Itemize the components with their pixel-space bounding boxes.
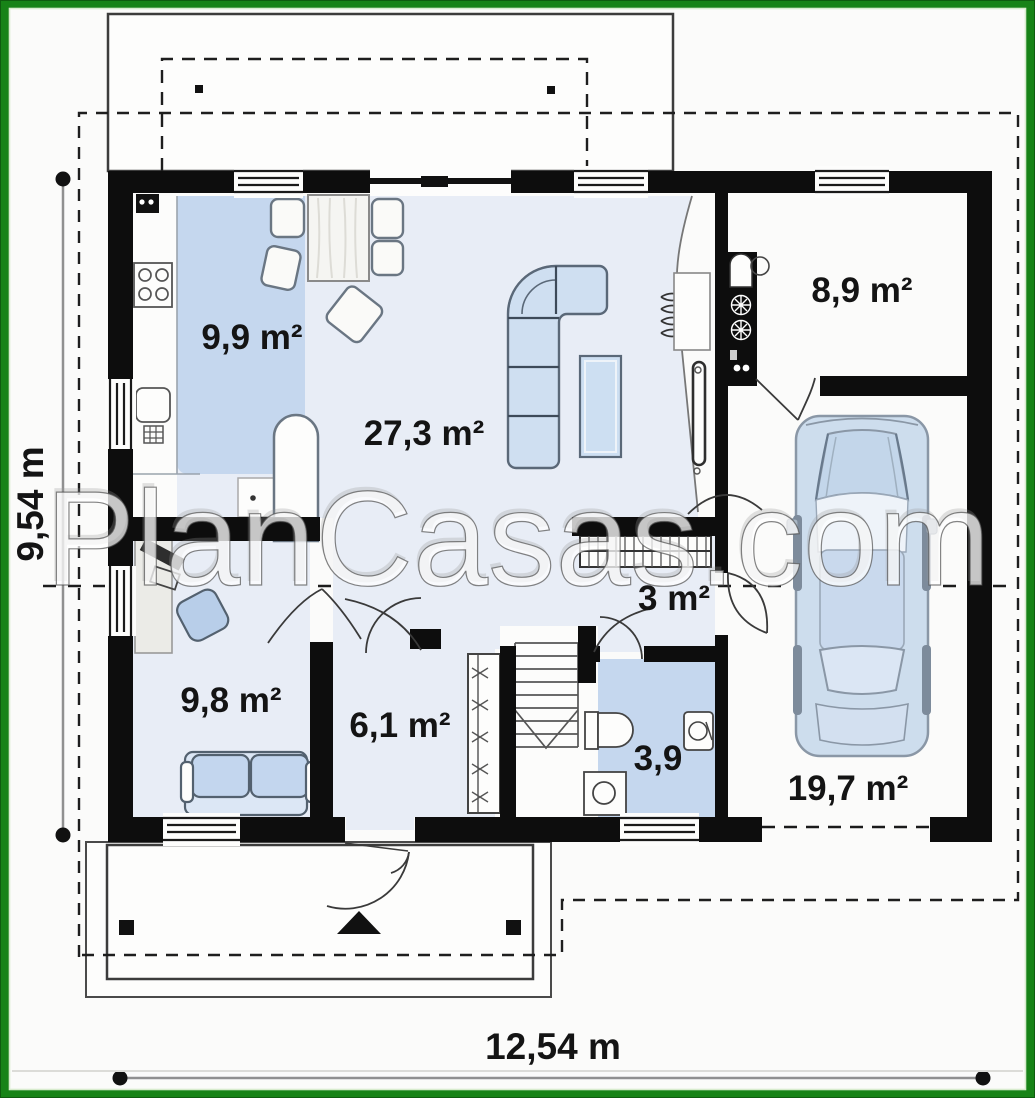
svg-text:9,9 m²: 9,9 m² <box>201 318 302 357</box>
svg-text:9,8 m²: 9,8 m² <box>180 681 281 720</box>
svg-text:12,54 m: 12,54 m <box>485 1026 621 1067</box>
svg-text:27,3 m²: 27,3 m² <box>364 414 485 453</box>
svg-text:19,7 m²: 19,7 m² <box>788 769 909 808</box>
svg-text:3,9: 3,9 <box>634 739 683 778</box>
svg-text:PlanCasas.com: PlanCasas.com <box>45 463 990 614</box>
svg-text:3 m²: 3 m² <box>638 579 710 618</box>
svg-text:8,9 m²: 8,9 m² <box>811 271 912 310</box>
svg-text:9,54 m: 9,54 m <box>10 446 51 561</box>
svg-text:6,1 m²: 6,1 m² <box>349 706 450 745</box>
